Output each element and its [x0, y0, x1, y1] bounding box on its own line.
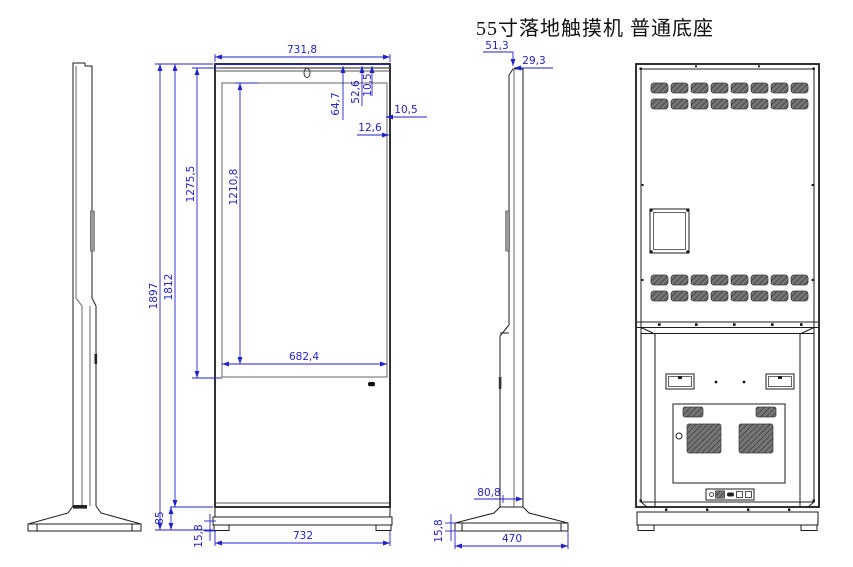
access-panel [673, 404, 785, 483]
side-left-neck-mark [73, 505, 87, 509]
side-right-handle-bump [506, 211, 510, 251]
dim-front-plate-height: 15,8 [193, 524, 205, 547]
back-foot [801, 525, 817, 531]
handle-slot-left [666, 374, 694, 389]
dim-front-glass-height: 1275,5 [185, 166, 197, 203]
side-right-latch-mark [499, 377, 502, 389]
dim-front-cabinet-height: 1812 [163, 274, 175, 301]
dimensions-layer: 731,8 1897 1812 1275,5 1210,8 682,4 64,7… [148, 40, 568, 549]
dim-front-overall-height: 1897 [148, 283, 160, 310]
dim-front-width-bottom: 732 [293, 530, 313, 542]
front-sensor-mark [368, 382, 375, 386]
dim-front-display-width: 682,4 [289, 351, 319, 363]
dim-front-display-height: 1210,8 [228, 169, 240, 206]
screw-dot [715, 381, 718, 384]
back-cabinet [636, 64, 819, 507]
drawing-canvas: 55寸落地触摸机 普通底座 [0, 0, 853, 567]
io-strip [706, 489, 754, 500]
dim-side-body-depth: 80,8 [477, 487, 500, 499]
dim-front-width-top: 731,8 [287, 44, 317, 56]
back-lower-section [655, 334, 800, 507]
panel-vent-large [739, 424, 773, 453]
side-left-base [28, 506, 141, 531]
front-base-band [213, 517, 392, 525]
front-foot [376, 525, 391, 531]
back-view [636, 64, 819, 531]
side-right-base [455, 507, 568, 531]
io-fan-glyph [716, 491, 725, 498]
io-port [746, 492, 752, 498]
dim-side-base-depth: 470 [502, 533, 522, 545]
back-mid-vents [651, 275, 808, 301]
dim-front-top-offset-a: 64,7 [330, 92, 342, 115]
dim-front-top-offset-c: 10,5 [362, 73, 374, 96]
io-port [737, 492, 743, 498]
handle-slot-right [766, 374, 794, 389]
panel-vent-small [683, 407, 703, 417]
side-right-step [500, 325, 509, 507]
side-left-latch-mark [95, 354, 98, 364]
dim-side-screen-depth: 29,3 [522, 55, 545, 67]
technical-drawing: 731,8 1897 1812 1275,5 1210,8 682,4 64,7… [0, 0, 853, 567]
lock-hole [676, 433, 682, 439]
back-inner-panel [641, 69, 814, 502]
back-foot [638, 525, 654, 531]
panel-vent-small [756, 407, 776, 417]
back-base-slab [637, 512, 818, 525]
back-seam [637, 322, 818, 334]
side-view-left [28, 63, 141, 531]
panel-vent-large [687, 424, 721, 453]
side-view-right [455, 69, 568, 531]
dim-front-edge-offset: 12,6 [358, 122, 382, 134]
dim-front-right-bezel: 10,5 [394, 104, 417, 116]
io-power-jack [710, 493, 714, 497]
back-top-vents [651, 83, 808, 109]
side-left-step-line [76, 298, 82, 506]
side-right-profile [509, 69, 523, 507]
screw-dot [743, 381, 746, 384]
dim-front-base-height: 85 [154, 511, 166, 524]
camera-hole [304, 68, 310, 77]
dim-side-top-depth: 51,3 [485, 40, 508, 52]
side-left-handle-bump [91, 211, 95, 251]
handle-cutout [650, 209, 689, 253]
io-switch [727, 493, 734, 497]
dim-front-top-offset-b: 52,6 [350, 80, 362, 104]
front-foot [214, 525, 229, 531]
dim-side-plate-height: 15,8 [433, 519, 445, 542]
